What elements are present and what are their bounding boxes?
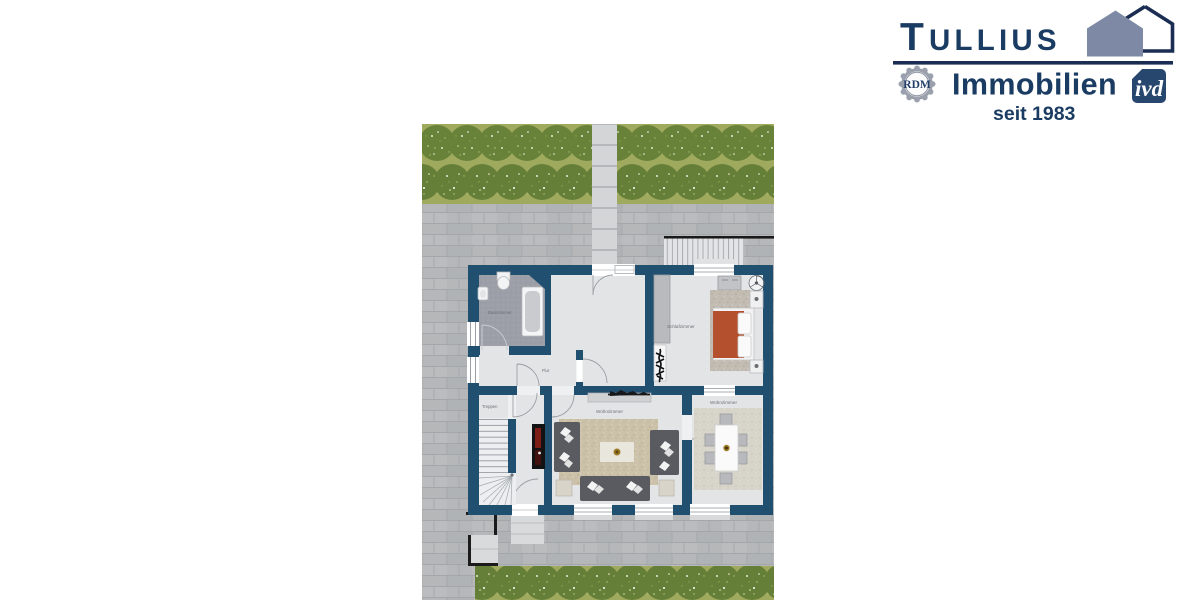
svg-text:Badezimmer: Badezimmer	[488, 310, 512, 315]
svg-text:T: T	[900, 16, 927, 59]
svg-text:RDM: RDM	[903, 79, 931, 91]
svg-text:Treppen: Treppen	[482, 404, 498, 409]
svg-text:Wohnzimmer: Wohnzimmer	[596, 409, 623, 414]
svg-text:Schlafzimmer: Schlafzimmer	[667, 324, 695, 329]
svg-text:Flur: Flur	[542, 368, 550, 373]
svg-text:seit 1983: seit 1983	[993, 103, 1076, 125]
svg-text:ivd: ivd	[1135, 76, 1164, 101]
svg-text:Wohnzimmer: Wohnzimmer	[710, 400, 737, 405]
svg-text:Immobilien: Immobilien	[952, 68, 1117, 102]
svg-text:ULLIUS: ULLIUS	[929, 24, 1061, 57]
